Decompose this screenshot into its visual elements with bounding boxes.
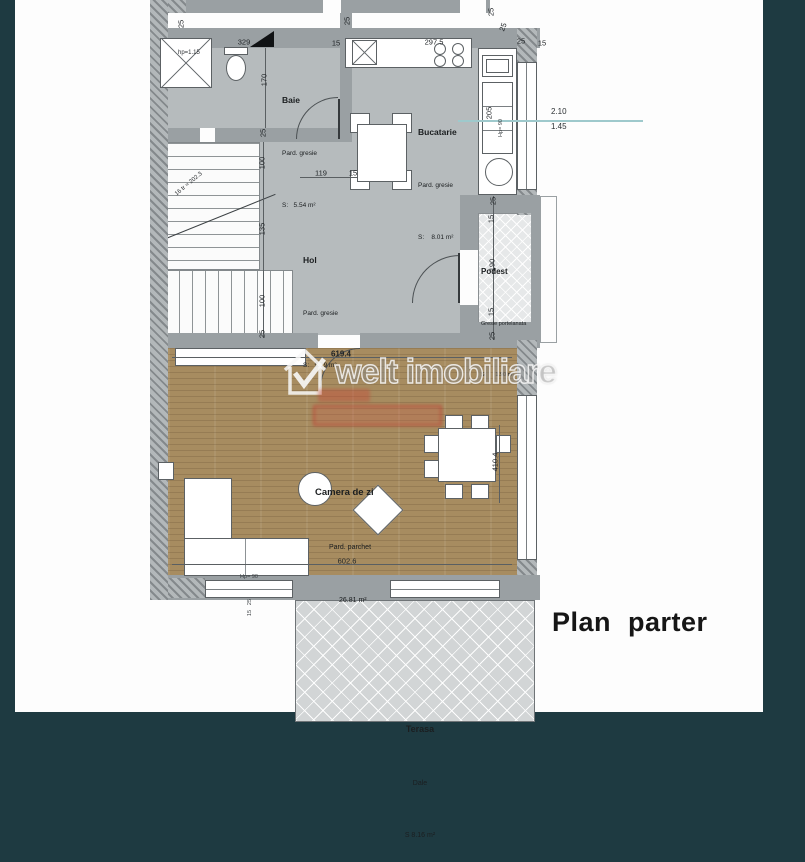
living-south-window-right (390, 580, 500, 598)
kitchen-round-basin (485, 158, 513, 186)
dimension-label: 15 (349, 169, 357, 178)
dimension-label: 15 (538, 39, 546, 48)
stove-burner (434, 55, 446, 67)
hol-label: Hol Pard. gresie S: 9.79 m² (303, 212, 338, 392)
chair (424, 460, 439, 478)
dimension-label: 170 (260, 74, 269, 87)
bucatarie-label: Bucatarie Pard. gresie S: 8.01 m² (418, 84, 457, 264)
kitchen-window (517, 62, 537, 190)
living-south-window-left (205, 580, 293, 598)
baie-door-leaf (338, 99, 340, 139)
wall-podest-north (460, 195, 540, 213)
dimension-label: 25 (259, 129, 268, 137)
room-name: Terasa (385, 723, 455, 735)
stove-burner (452, 55, 464, 67)
toilet-bowl (226, 55, 246, 81)
dimension-label: 25 (247, 599, 253, 605)
camera-de-zi-label: Camera de zi Pard. parchet 26.81 m² (315, 444, 374, 627)
chair (424, 435, 439, 453)
dimension-label: 205 (485, 107, 494, 120)
shower-height-label: hp=1.15 (178, 50, 200, 56)
baie-label: Baie Pard. gresie S: 5.54 m² (282, 52, 317, 232)
wall-pilaster (158, 462, 174, 480)
kitchen-sink-basin (486, 59, 509, 73)
room-name: Hol (303, 255, 338, 266)
dimension-label: 100 (258, 295, 267, 308)
room-floor: Pard. gresie (303, 310, 338, 319)
dimension-label: 100 (258, 157, 267, 170)
room-area: S: 5.54 m² (282, 202, 317, 211)
wall-gap (200, 128, 215, 142)
room-area: S: 8.01 m² (418, 234, 457, 243)
room-floor: Pard. gresie (418, 182, 457, 191)
wall-gap (460, 0, 486, 13)
kitchen-table (357, 124, 407, 182)
room-floor: Dale (385, 779, 455, 788)
living-east-window (517, 395, 537, 560)
podest-label: Podest Gresie portelanata S: 1.90 m² (481, 224, 537, 401)
chair (471, 484, 489, 499)
sofa-section-horizontal (184, 538, 309, 576)
room-area: S: 9.79 m² (303, 362, 338, 371)
dimension-label: Hp= 90 (498, 119, 504, 137)
wall-hol-living-mid (360, 333, 460, 348)
wall-gap (323, 0, 341, 13)
toilet-tank (224, 47, 248, 55)
dimension-label: 297.5 (425, 38, 444, 47)
sofa-section-vertical (184, 478, 232, 540)
dimension-label: 25 (258, 330, 267, 338)
dimension-label: 329 (238, 38, 251, 47)
red-stamp-box (313, 405, 442, 426)
height-upper-value: 2.10 (551, 104, 567, 119)
shower-cabin (160, 38, 212, 88)
wall-south-hatch-block (163, 578, 205, 598)
floor-plan-screenshot: { "title": { "text": "Plan parter" }, "w… (0, 0, 805, 720)
red-stamp-line (318, 389, 370, 402)
dimension-line (263, 142, 264, 338)
room-name: Bucatarie (418, 127, 457, 138)
dimension-label: 25 (177, 20, 186, 28)
podest-door-leaf (458, 253, 460, 303)
height-annotation: 2.10 1.45 (551, 104, 567, 134)
chair (445, 484, 463, 499)
room-name: Baie (282, 95, 317, 106)
dimension-label: 135 (258, 223, 267, 236)
dimension-label: 25 (343, 17, 352, 25)
dimension-label: Hp= 90 (240, 574, 258, 580)
dimension-label: 410.4 (491, 453, 500, 472)
dimension-label: 15 (247, 610, 253, 616)
dimension-line (265, 48, 266, 128)
dimension-label: 25 (489, 197, 498, 205)
stove-burner (452, 43, 464, 55)
wall-top-cut (150, 0, 490, 13)
wall-left-exterior (150, 0, 168, 600)
room-name: Podest (481, 267, 537, 278)
room-floor: Pard. gresie (282, 150, 317, 159)
room-floor: Pard. parchet (329, 543, 374, 552)
exterior-landing-outline (540, 196, 557, 343)
plan-title: Plan parter (552, 607, 708, 638)
height-lower-value: 1.45 (551, 119, 567, 134)
dimension-label: 25 (517, 37, 525, 46)
room-area: 26.81 m² (339, 596, 374, 605)
wall-hol-living-left (150, 333, 318, 348)
room-name: Camera de zi (315, 487, 374, 500)
staircase-lower-flight (165, 270, 293, 335)
kitchen-appliance-xbox (352, 40, 377, 65)
dimension-label: 25 (487, 8, 496, 16)
door-opening (460, 250, 478, 305)
dining-table (438, 428, 496, 482)
room-area: S: 1.90 m² (481, 372, 537, 379)
terasa-label: Terasa Dale S 8.16 m² (385, 680, 455, 862)
dimension-label: 15 (487, 215, 496, 223)
room-floor: Gresie portelanata (481, 321, 537, 328)
dimension-label: 15 (332, 39, 340, 48)
room-area: S 8.16 m² (385, 831, 455, 840)
